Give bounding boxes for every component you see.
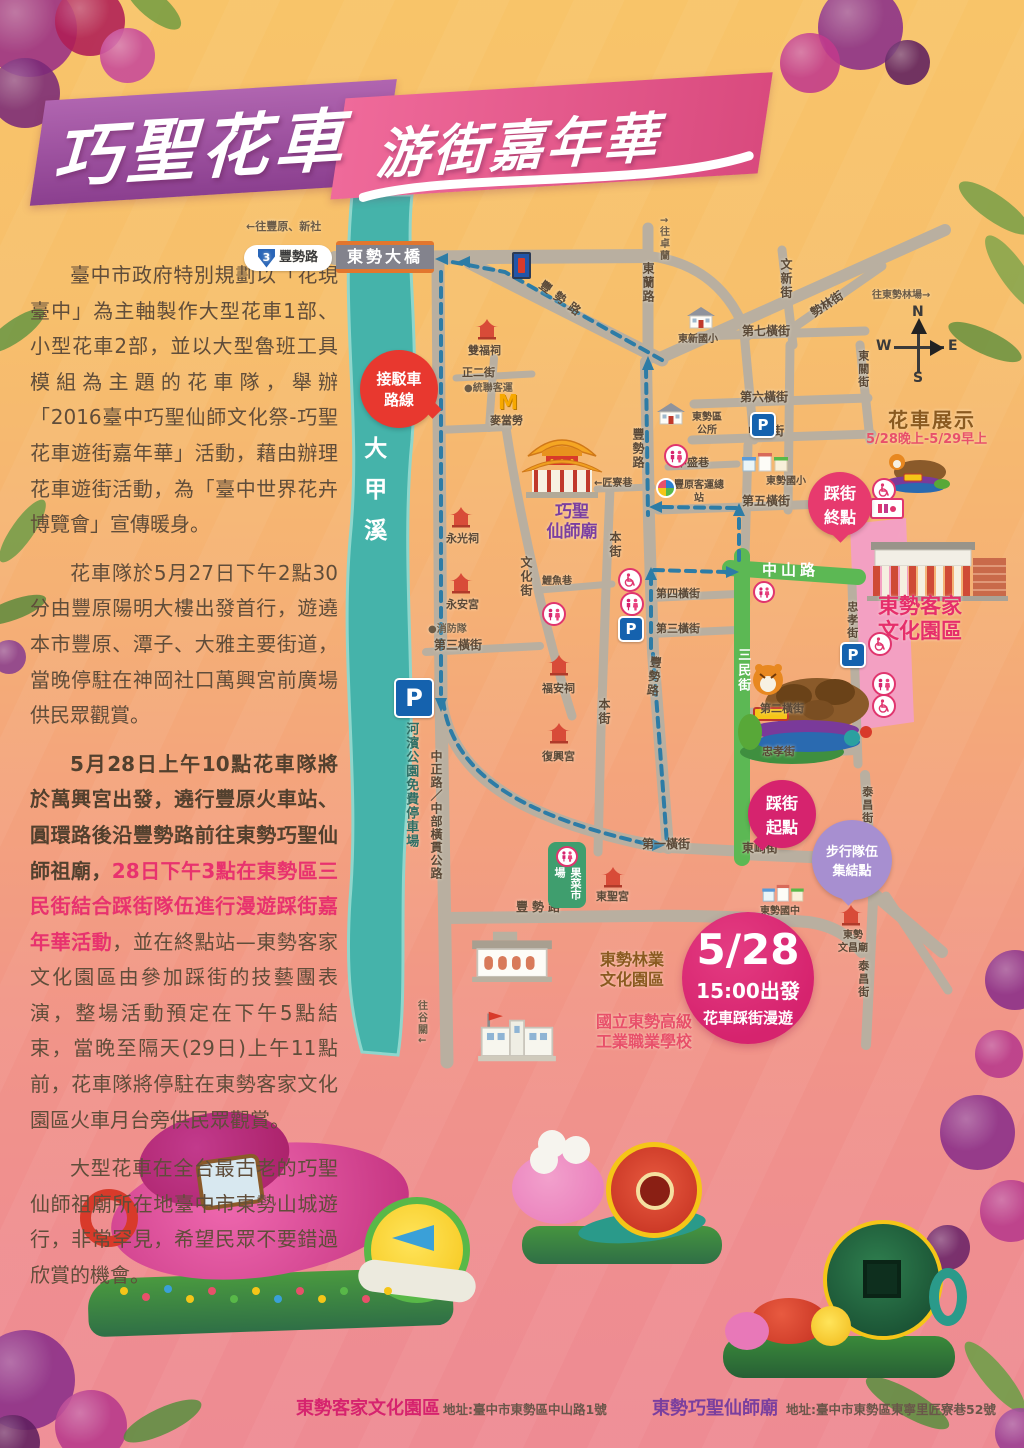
vocational-school-illustration: [478, 1010, 556, 1063]
shuttle-route-bubble: 接駁車路線: [360, 350, 438, 428]
toilet-icon: [542, 602, 566, 626]
footer-venue2-name: 東勢巧聖仙師廟: [652, 1394, 778, 1420]
article-paragraph-2: 花車隊於5月27日下午2點30分由豐原陽明大樓出發首行，遊遶本市豐原、潭子、大雅…: [30, 556, 338, 734]
direction-note-forest: 往東勢林場→: [872, 290, 930, 303]
landmark-fuan: 福安祠: [542, 682, 575, 696]
highway-3-shield-icon: 3: [258, 249, 275, 268]
route-3-sign: 3 豐勢路: [244, 245, 332, 271]
article-paragraph-1: 臺中市政府特別規劃以「花現臺中」為主軸製作大型花車1部、小型花車2部，並以大型魯…: [30, 258, 338, 543]
landmark-dongxin: 東新國小: [678, 334, 718, 347]
compass-rose-icon: N W E S: [884, 310, 954, 384]
toilet-icon: [556, 846, 578, 867]
shuttle-stop-sign: [870, 498, 904, 519]
wenchang-temple-icon: [838, 904, 864, 926]
street-hengjie6: 第六橫街: [740, 390, 788, 405]
street-zhongxiao-vertical: 忠孝街: [845, 601, 859, 640]
landmark-fuxing: 復興宮: [542, 750, 575, 764]
mcdonalds-icon: M: [498, 390, 518, 414]
district-office-icon: [656, 402, 686, 426]
fuan-temple-icon: [546, 654, 572, 676]
hakka-park-illustration: [853, 538, 1008, 602]
street-taichang-upper: 泰昌街: [860, 786, 874, 825]
article-paragraph-4: 大型花車在全台最古老的巧聖仙師祖廟所在地臺中市東勢山城遊行，非常罕見，希望民眾不…: [30, 1151, 338, 1293]
landmark-mcdonalds: 麥當勞: [490, 414, 523, 428]
street-dongguan: 東關街: [856, 350, 870, 389]
landmark-office: 東勢區公所: [690, 412, 724, 437]
exhibit-time: 5/28晚上-5/29早上: [866, 432, 987, 448]
dongshi-elementary-icon: [742, 452, 788, 472]
riverside-parking-icon: P: [394, 678, 434, 718]
benjie-parking-icon: P: [618, 616, 644, 642]
landmark-wenchang: 東勢文昌廟: [832, 930, 874, 955]
office-parking-icon: P: [750, 412, 776, 438]
street-benjie-south: 本街: [596, 698, 611, 726]
yongan-temple-icon: [448, 572, 474, 594]
event-desc: 花車踩街漫遊: [703, 1007, 793, 1028]
landmark-yongan: 永安宮: [446, 598, 479, 612]
street-hengjie4: 第四橫街: [656, 587, 700, 601]
street-hengjie1: 第一橫街: [642, 837, 690, 852]
event-poster: 巧聖花車 游街嘉年華 臺中市政府特別規劃以「花現臺中」為主軸製作大型花車1部、小…: [0, 0, 1024, 1448]
parade-float-illustration: [732, 652, 882, 770]
forestry-park-illustration: [472, 930, 552, 982]
landmark-market: 果菜市場: [551, 867, 583, 908]
title-main: 巧聖花車: [51, 84, 351, 202]
street-zhongxiao-horizontal: 忠孝街: [762, 745, 795, 759]
street-liyu: 鯉魚巷: [542, 576, 572, 589]
portable-toilet-icon: [512, 252, 531, 279]
toilet-icon: [753, 581, 775, 603]
yongguang-temple-icon: [448, 506, 474, 528]
compass-north: N: [912, 304, 924, 320]
accessibility-icon: [618, 568, 642, 592]
landmark-fire-station: ●消防隊: [428, 624, 467, 637]
compass-east: E: [948, 338, 958, 354]
event-info-circle: 5/28 15:00出發 花車踩街漫遊: [682, 912, 814, 1044]
landmark-qiaosheng-temple: 巧聖仙師廟: [536, 502, 608, 543]
fuxing-temple-icon: [546, 722, 572, 744]
toilet-icon: [664, 444, 688, 468]
street-benjie-north: 本街: [607, 531, 622, 559]
junior-high-icon: [762, 884, 804, 902]
street-wenxin: 文新街: [778, 258, 793, 300]
flower-float-swirl: [512, 1130, 734, 1268]
flower-float-coin: [715, 1220, 967, 1382]
compass-south: S: [913, 370, 923, 386]
exhibit-title: 花車展示: [888, 408, 976, 433]
street-zhongzheng: 中正路／中部橫貫公路: [428, 750, 443, 880]
market-box: 果菜市場: [548, 842, 586, 908]
event-date: 5/28: [696, 928, 799, 972]
accessibility-icon: [868, 632, 892, 656]
landmark-forestry: 東勢林業文化園區: [600, 950, 670, 990]
street-hengjie3-west: 第三橫街: [434, 638, 482, 653]
street-taichang-lower: 泰昌街: [856, 960, 870, 999]
riverside-parking-label: 河濱公園免費停車場: [402, 722, 418, 848]
landmark-dongshi-elementary: 東勢國小: [766, 476, 806, 489]
street-wenhuajie: 文化街: [518, 556, 533, 598]
direction-note-guguan: 往谷關↓: [414, 1000, 427, 1046]
river-shape: [347, 195, 414, 1055]
event-depart: 15:00出發: [696, 975, 800, 1004]
direction-note-zhuolan: ↑往卓蘭: [656, 216, 669, 262]
street-jiangliao: ←匠寮巷: [594, 478, 632, 491]
landmark-dongshenggong: 東聖宮: [596, 890, 629, 904]
river-name: 大甲溪: [358, 436, 387, 559]
toilet-icon: [620, 592, 644, 616]
dongxin-school-icon: [686, 306, 716, 330]
street-hengjie3-east: 第三橫街: [656, 622, 700, 636]
shuangfu-temple-icon: [474, 318, 500, 340]
street-zhongshan: 中山路: [762, 561, 819, 580]
dongshenggong-temple-icon: [600, 866, 626, 888]
article-paragraph-3: 5月28日上午10點花車隊將於萬興宮出發，遶行豐原火車站、圓環路後沿豐勢路前往東…: [30, 747, 338, 1139]
street-zhenger: 正二街: [462, 366, 495, 380]
accessibility-icon: [872, 694, 896, 718]
landmark-busstation: 豐原客運總站: [674, 480, 724, 505]
landmark-vocational: 國立東勢高級工業職業學校: [596, 1012, 700, 1052]
parade-start-bubble: 踩街起點: [748, 780, 816, 848]
landmark-yongguang: 永光祠: [446, 532, 479, 546]
bridge-label: 東勢大橋: [336, 241, 434, 273]
toilet-icon: [872, 672, 896, 696]
street-fengshi-vertical: 豐勢路: [630, 428, 645, 470]
hakka-parking-icon: P: [840, 642, 866, 668]
street-hengjie7: 第七橫街: [742, 324, 790, 339]
walking-assembly-bubble: 步行隊伍集結點: [812, 820, 892, 900]
article-column: 臺中市政府特別規劃以「花現臺中」為主軸製作大型花車1部、小型花車2部，並以大型魯…: [30, 258, 338, 1307]
parade-end-bubble: 踩街終點: [808, 472, 872, 536]
street-hengjie2: 第二橫街: [760, 702, 804, 716]
landmark-shuangfu: 雙福祠: [468, 344, 501, 358]
street-sanmin: 三民街: [734, 648, 750, 693]
street-hengjie5: 第五橫街: [742, 494, 790, 509]
footer-venue1-name: 東勢客家文化園區: [296, 1394, 440, 1420]
street-donglan: 東蘭路: [640, 262, 655, 304]
route-sign-street: 豐勢路: [279, 250, 318, 266]
bus-terminal-icon: [656, 478, 676, 498]
footer-venue2-address: 地址:臺中市東勢區東寧里匠寮巷52號: [786, 1399, 996, 1418]
footer-venue1-address: 地址:臺中市東勢區中山路1號: [443, 1399, 607, 1418]
compass-west: W: [876, 338, 891, 354]
